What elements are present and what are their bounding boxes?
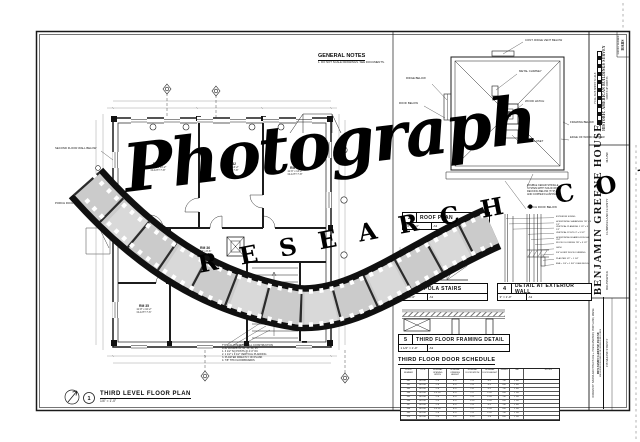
drawing-sheet: 1	[0, 0, 640, 442]
film-strip-watermark	[0, 0, 640, 442]
